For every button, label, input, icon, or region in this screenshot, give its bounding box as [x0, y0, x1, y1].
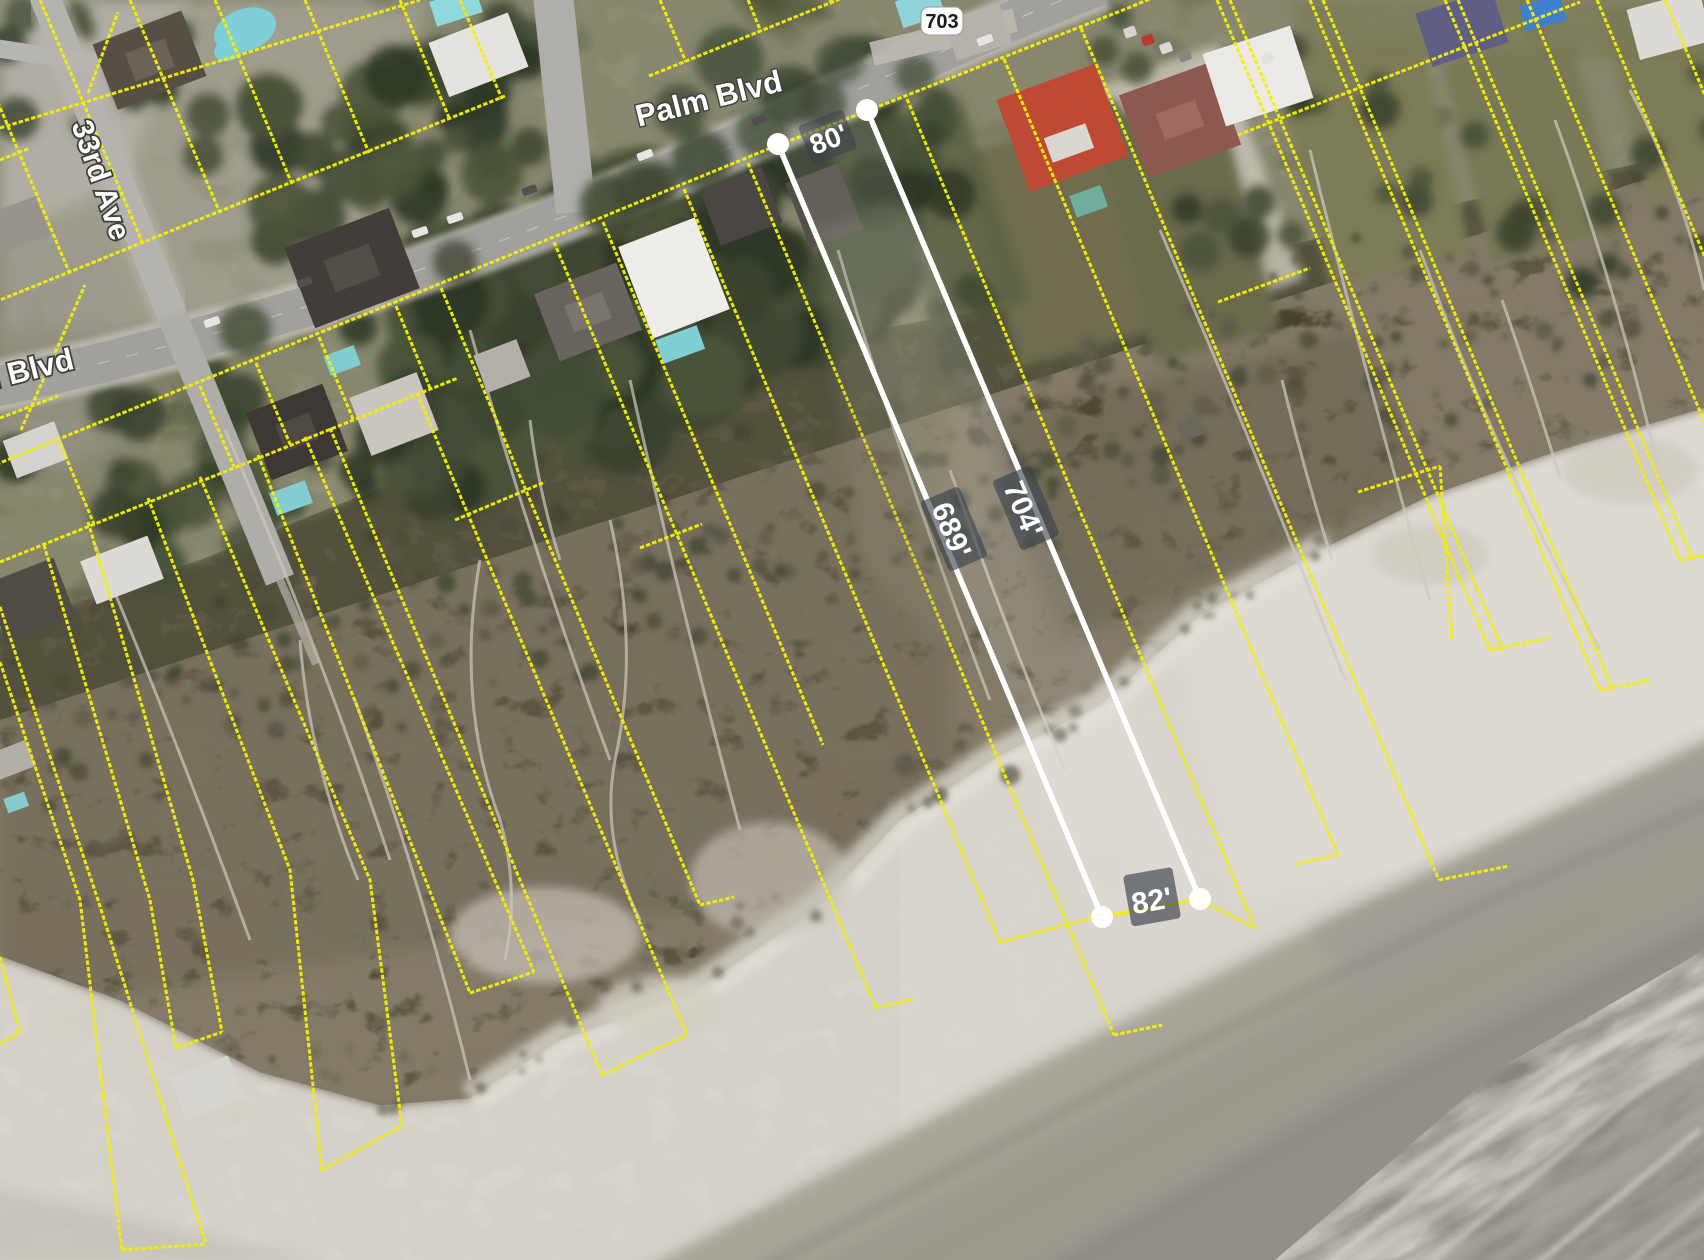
- svg-text:703: 703: [925, 11, 958, 33]
- svg-text:82': 82': [1129, 882, 1175, 922]
